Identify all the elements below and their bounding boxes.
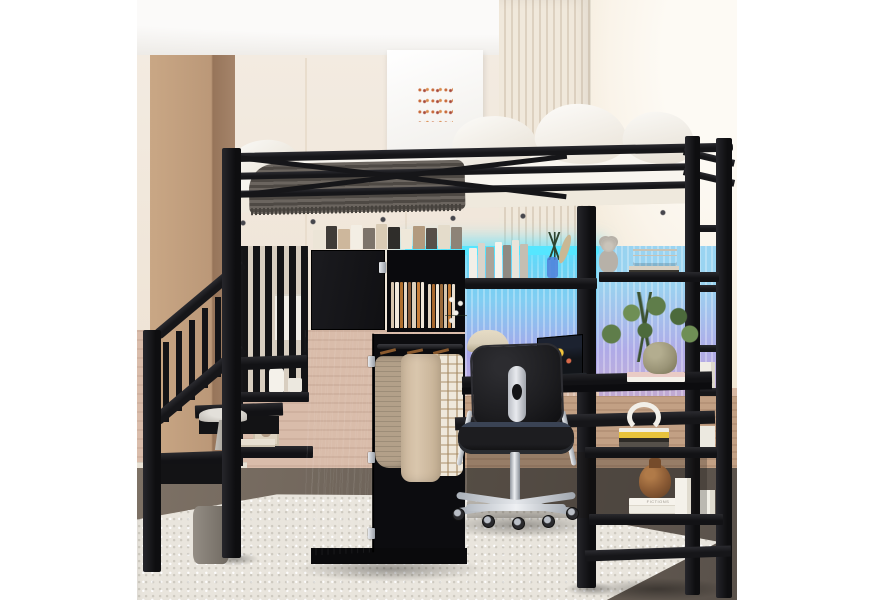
wardrobe-upper-door <box>311 250 385 330</box>
ladder-rung <box>698 285 718 292</box>
desk-shelf-books <box>469 240 529 278</box>
product-photo-canvas: FICTIONS <box>0 0 875 600</box>
chair-caster <box>566 507 579 520</box>
desk-hutch-shelf <box>465 278 597 289</box>
door-hinge <box>368 528 375 539</box>
chair-caster <box>542 515 555 528</box>
retro-radio <box>633 244 677 266</box>
ladder-rung <box>698 345 718 352</box>
door-hinge <box>368 356 375 367</box>
blue-glass-vase <box>547 257 558 278</box>
chair-caster <box>512 517 525 530</box>
chair-seat <box>458 422 574 454</box>
tower-shelf <box>585 447 717 458</box>
desk-plant-vase <box>643 342 677 374</box>
hanging-coat <box>401 354 441 482</box>
chair-base-leg <box>466 504 566 511</box>
teddy-bear-head <box>601 238 616 252</box>
wall-art-print <box>417 82 453 122</box>
white-cup <box>288 378 302 392</box>
teddy-bear <box>599 250 618 273</box>
chair-pedestal <box>510 452 520 506</box>
bed-post-left <box>222 148 241 558</box>
folded-textile-stack <box>391 282 425 328</box>
stair-riser <box>155 464 231 484</box>
office-chair <box>452 340 582 530</box>
brown-vase <box>639 464 671 498</box>
brown-vase-neck <box>649 458 661 468</box>
white-upright-book <box>675 478 691 514</box>
right-compartment-shelf <box>599 272 719 282</box>
stair-tread <box>237 355 307 370</box>
stair-newel-post <box>143 330 161 572</box>
flat-book <box>241 439 275 447</box>
photo-area: FICTIONS <box>137 0 737 600</box>
bed-post-right-inner <box>685 136 700 595</box>
door-hinge <box>379 262 386 273</box>
bed-post-right-outer <box>716 138 732 598</box>
storage-shelf <box>237 392 309 402</box>
chair-caster <box>452 508 465 521</box>
headphones <box>627 402 661 432</box>
tower-shelf <box>589 514 723 525</box>
white-bottle <box>269 368 284 392</box>
ladder-rung <box>698 225 718 232</box>
white-flowers <box>445 292 467 330</box>
chair-caster <box>482 515 495 528</box>
door-hinge <box>368 452 375 463</box>
wardrobe-open-door <box>305 330 374 556</box>
storage-shelf <box>233 446 313 458</box>
